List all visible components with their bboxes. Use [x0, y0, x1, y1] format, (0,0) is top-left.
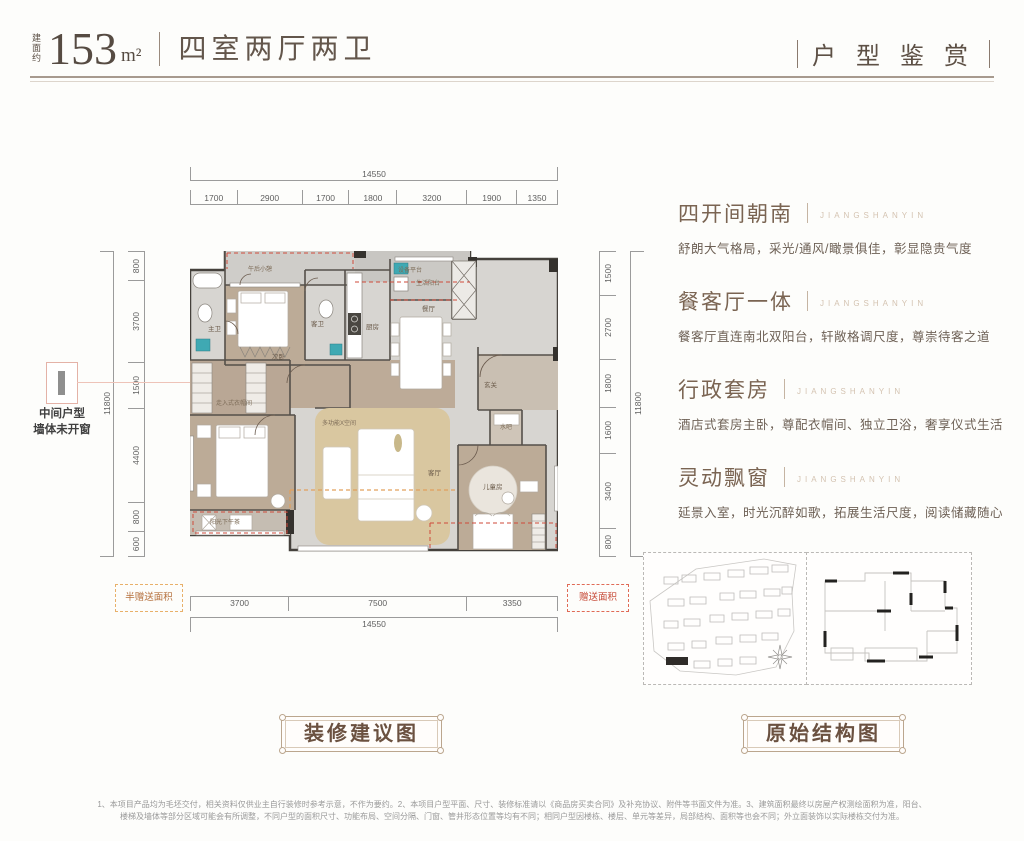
feature-desc: 延景入室，时光沉醉如歌，拓展生活尺度，阅读储藏随心 [678, 502, 1010, 521]
header-series: 户 型 鉴 赏 [797, 36, 990, 71]
site-plan-thumbnail [643, 552, 807, 685]
room-label-living: 客厅 [428, 468, 442, 477]
structure-walls-light [825, 573, 957, 661]
room-label-master-bath: 主卫 [208, 324, 222, 333]
disclaimer-line1: 1、本项目产品均为毛坯交付，相关资料仅供业主自行装修时参考示意，不作为要约。2、… [38, 799, 986, 811]
toilet-icon [198, 304, 212, 322]
dim-label: 1900 [482, 193, 501, 204]
decor-plan-caption: 装修建议图 [281, 716, 442, 752]
sink-icon [196, 339, 210, 351]
feature-desc: 餐客厅直连南北双阳台，轩敞格调尺度，尊崇待客之道 [678, 326, 1010, 345]
disclaimer-line2: 楼梯及墙体等部分区域可能会有所调整，不同户型的面积尺寸、功能布局、空间分隔、门窗… [38, 811, 986, 823]
area-unit: m² [121, 45, 141, 67]
dim-label: 3700 [230, 597, 249, 608]
dim-label: 1350 [528, 193, 547, 204]
series-bar-right [989, 40, 990, 68]
highlighted-building [666, 657, 688, 665]
chair-icon [502, 492, 514, 504]
bed-icon [473, 514, 513, 549]
half-gift-area-tag: 半赠送面积 [115, 584, 183, 612]
room-label-flex: 多功能X空间 [322, 419, 356, 427]
north-balcony-floor [225, 251, 355, 285]
room-label-kitchen: 厨房 [366, 322, 379, 331]
dim-label: 1800 [603, 374, 613, 393]
original-plan-caption-text: 原始结构图 [766, 723, 881, 745]
marker-connector-line [77, 382, 190, 383]
dim-label: 3700 [131, 312, 141, 331]
room-label-guest-bath: 客卫 [311, 319, 325, 328]
desk-icon [520, 481, 538, 492]
dim-label: 7500 [368, 597, 387, 608]
dim-left-segments: 800 3700 1500 4400 800 600 [128, 251, 145, 557]
room-label-platform: 设备平台 [398, 266, 422, 274]
frame-ornament [899, 747, 906, 754]
feature-watermark: JIANGSHANYIN [797, 475, 904, 484]
frame-ornament [741, 714, 748, 721]
dim-label: 3400 [603, 482, 613, 501]
dim-label: 800 [131, 259, 141, 273]
feature-list: 四开间朝南JIANGSHANYIN 舒朗大气格局，采光/通风/瞰景俱佳，彰显隐贵… [678, 198, 1010, 550]
series-bar-left [797, 40, 798, 68]
shaft-brace [452, 261, 476, 319]
side-table-icon [416, 505, 432, 521]
feature-desc: 酒店式套房主卧，尊配衣帽间、独立卫浴，奢享仪式生活 [678, 414, 1010, 433]
dining-table [391, 317, 451, 389]
waterbar-counter [494, 414, 519, 425]
dim-label: 14550 [362, 169, 386, 180]
feature-divider [784, 467, 785, 487]
dim-label: 4400 [131, 446, 141, 465]
dim-bottom-total: 14550 [190, 617, 558, 632]
frame-ornament [279, 714, 286, 721]
disclaimer: 1、本项目产品均为毛坯交付，相关资料仅供业主自行装修时参考示意，不作为要约。2、… [38, 799, 986, 823]
feature-item: 灵动飘窗JIANGSHANYIN 延景入室，时光沉醉如歌，拓展生活尺度，阅读储藏… [678, 462, 1010, 521]
dim-top-segments: 1700 2900 1700 1800 3200 1900 1350 [190, 190, 558, 205]
mid-unit-note: 中间户型 墙体未开窗 [18, 406, 106, 438]
dim-label: 800 [603, 535, 613, 549]
feature-desc: 舒朗大气格局，采光/通风/瞰景俱佳，彰显隐贵气度 [678, 238, 1010, 257]
frame-ornament [741, 747, 748, 754]
compass-icon [768, 645, 792, 669]
decor-plan-caption-text: 装修建议图 [304, 723, 419, 745]
original-plan-caption: 原始结构图 [743, 716, 904, 752]
plant-icon [394, 434, 402, 452]
sink-icon [330, 344, 342, 355]
area-value: 153 [48, 26, 117, 72]
dim-label: 3200 [422, 193, 441, 204]
header-rule-light [30, 81, 994, 82]
dim-label: 2900 [260, 193, 279, 204]
header-divider [159, 32, 160, 66]
frame-ornament [899, 714, 906, 721]
dim-label: 1500 [603, 264, 613, 283]
dim-label: 1500 [131, 376, 141, 395]
dim-label: 1800 [363, 193, 382, 204]
dim-right-segments: 1500 2700 1800 1600 3400 800 [599, 251, 616, 557]
room-label-closet: 走入式衣帽间 [216, 399, 252, 407]
room-label-waterbar: 水吧 [500, 423, 512, 431]
dim-left-total: 11800 [100, 251, 114, 557]
header-rule [30, 76, 994, 78]
feature-title: 灵动飘窗 [678, 462, 770, 492]
dim-top-total: 14550 [190, 167, 558, 181]
dim-label: 14550 [362, 618, 386, 629]
mid-unit-marker-icon [46, 362, 78, 404]
room-label-kids: 儿童房 [483, 482, 503, 491]
dim-label: 2700 [603, 318, 613, 337]
gift-area-tag: 赠送面积 [567, 584, 629, 612]
feature-title: 四开间朝南 [678, 198, 793, 228]
dim-label: 600 [131, 537, 141, 551]
wall-bar-icon [58, 371, 65, 395]
room-label-south-balcony: 阳光下午茶 [210, 518, 240, 526]
room-label-bedroom2: 次卧 [272, 352, 286, 361]
mid-unit-note-line1: 中间户型 [18, 406, 106, 422]
dim-label: 1600 [603, 421, 613, 440]
dim-bottom-segments: 3700 7500 3350 [190, 596, 558, 611]
frame-ornament [279, 747, 286, 754]
toilet-icon [319, 300, 333, 318]
room-label-dining: 餐厅 [422, 304, 436, 313]
site-buildings [664, 565, 792, 668]
rooms-title: 四室两厅两卫 [178, 27, 376, 67]
chaise-icon [323, 447, 351, 499]
feature-watermark: JIANGSHANYIN [820, 211, 927, 220]
feature-watermark: JIANGSHANYIN [820, 299, 927, 308]
floorplan-poster: 建面约 153 m² 四室两厅两卫 户 型 鉴 赏 四开间朝南JIANGSHAN… [0, 0, 1024, 841]
dim-right-total: 11800 [630, 251, 644, 557]
kitchen-fixtures [347, 273, 362, 358]
feature-divider [807, 291, 808, 311]
washer-icon [394, 277, 408, 291]
feature-item: 餐客厅一体JIANGSHANYIN 餐客厅直连南北双阳台，轩敞格调尺度，尊崇待客… [678, 286, 1010, 345]
bathtub-icon [193, 273, 222, 288]
dim-label: 1700 [204, 193, 223, 204]
room-label-foyer: 玄关 [484, 380, 498, 389]
feature-watermark: JIANGSHANYIN [797, 387, 904, 396]
feature-item: 四开间朝南JIANGSHANYIN 舒朗大气格局，采光/通风/瞰景俱佳，彰显隐贵… [678, 198, 1010, 257]
floor-plan: 午后小憩 设备平台 次卧 主卫 客卫 厨房 生活阳台 餐厅 玄关 客厅 多功能X… [190, 251, 558, 557]
frame-ornament [437, 747, 444, 754]
dim-label: 11800 [633, 392, 643, 415]
mid-unit-note-line2: 墙体未开窗 [18, 422, 106, 438]
feature-title: 餐客厅一体 [678, 286, 793, 316]
feature-divider [784, 379, 785, 399]
room-label-north-balcony: 午后小憩 [248, 265, 272, 273]
header-area: 建面约 153 m² 四室两厅两卫 [32, 26, 377, 72]
dim-label: 800 [131, 510, 141, 524]
series-title: 户 型 鉴 赏 [812, 36, 975, 71]
room-label-life-balcony: 生活阳台 [416, 279, 440, 287]
dim-label: 3350 [503, 597, 522, 608]
feature-divider [807, 203, 808, 223]
feature-title: 行政套房 [678, 374, 770, 404]
original-structure-thumbnail [806, 552, 972, 685]
area-prefix: 建面约 [32, 33, 45, 63]
dim-label: 1700 [316, 193, 335, 204]
feature-item: 行政套房JIANGSHANYIN 酒店式套房主卧，尊配衣帽间、独立卫浴，奢享仪式… [678, 374, 1010, 433]
frame-ornament [437, 714, 444, 721]
